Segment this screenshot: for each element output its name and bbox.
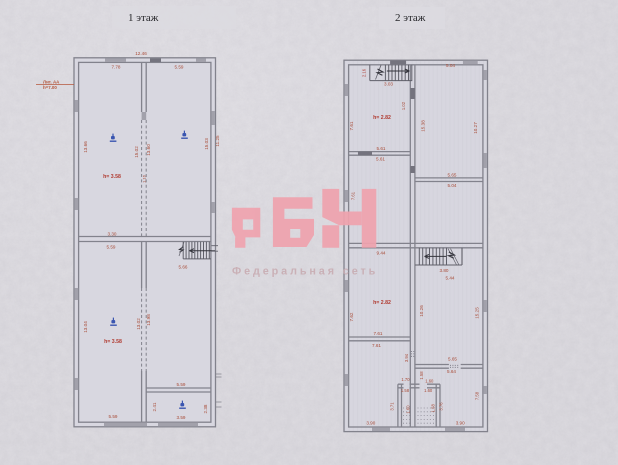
svg-text:1.70: 1.70 [401, 377, 410, 382]
svg-text:5.61: 5.61 [376, 157, 385, 162]
svg-text:3.71: 3.71 [390, 402, 395, 411]
svg-text:13.60: 13.60 [146, 144, 151, 156]
svg-text:15.38: 15.38 [421, 120, 426, 132]
svg-text:5.61: 5.61 [377, 146, 386, 151]
svg-text:2.16: 2.16 [362, 68, 367, 77]
svg-text:5.65: 5.65 [448, 173, 457, 178]
svg-text:1.60: 1.60 [406, 405, 411, 414]
svg-text:5.66: 5.66 [179, 265, 188, 270]
svg-text:11.25: 11.25 [215, 135, 220, 147]
svg-text:2.38: 2.38 [203, 404, 208, 413]
svg-text:3.94: 3.94 [404, 353, 409, 362]
svg-text:3.76: 3.76 [439, 402, 444, 411]
svg-text:5.59: 5.59 [109, 414, 118, 419]
svg-text:10.26: 10.26 [419, 305, 424, 317]
svg-text:2 этаж: 2 этаж [395, 12, 426, 24]
svg-text:3.90: 3.90 [456, 420, 465, 425]
svg-text:5.59: 5.59 [175, 65, 184, 70]
svg-text:3.59: 3.59 [177, 415, 186, 420]
svg-text:12.46: 12.46 [135, 51, 147, 56]
svg-text:13.04: 13.04 [83, 321, 88, 333]
svg-text:5.04: 5.04 [448, 183, 457, 188]
svg-text:Лит. АА: Лит. АА [43, 80, 60, 85]
svg-text:5.64: 5.64 [447, 369, 456, 374]
svg-text:3.90: 3.90 [366, 420, 375, 425]
svg-text:13.02: 13.02 [136, 318, 141, 330]
svg-text:5.65: 5.65 [448, 357, 457, 362]
svg-text:7.58: 7.58 [475, 391, 480, 400]
svg-text:Федеральная сеть: Федеральная сеть [232, 266, 378, 278]
svg-text:7.62: 7.62 [349, 312, 354, 321]
svg-text:1 этаж: 1 этаж [128, 12, 159, 24]
svg-text:1.58: 1.58 [401, 388, 410, 393]
svg-text:7.61: 7.61 [374, 331, 383, 336]
svg-text:5.59: 5.59 [177, 382, 186, 387]
svg-text:1.58: 1.58 [431, 404, 436, 413]
svg-text:9.44: 9.44 [377, 251, 386, 256]
svg-text:5.44: 5.44 [446, 276, 455, 281]
svg-text:15.25: 15.25 [475, 307, 480, 319]
svg-text:7.78: 7.78 [112, 65, 121, 70]
svg-text:10.27: 10.27 [473, 122, 478, 134]
svg-text:2.41: 2.41 [152, 402, 157, 411]
svg-text:h= 2.82: h= 2.82 [373, 300, 391, 306]
svg-text:13.66: 13.66 [83, 141, 88, 153]
svg-text:15.02: 15.02 [134, 146, 139, 158]
svg-text:1.16: 1.16 [142, 174, 147, 183]
svg-text:7.61: 7.61 [372, 343, 381, 348]
svg-text:1.02: 1.02 [401, 101, 406, 110]
svg-text:1.58: 1.58 [419, 371, 424, 380]
svg-text:h=7.00: h=7.00 [43, 85, 57, 90]
svg-text:h= 2.82: h= 2.82 [373, 115, 391, 121]
svg-text:1.60: 1.60 [424, 388, 433, 393]
svg-text:7.61: 7.61 [351, 191, 356, 200]
svg-text:h= 3.58: h= 3.58 [104, 339, 122, 345]
svg-text:3.80: 3.80 [440, 268, 449, 273]
svg-text:5.04: 5.04 [446, 63, 455, 68]
svg-text:5.59: 5.59 [107, 245, 116, 250]
svg-text:1.60: 1.60 [425, 378, 434, 383]
svg-text:13.98: 13.98 [146, 314, 151, 326]
svg-text:7.61: 7.61 [349, 121, 354, 130]
svg-text:h= 3.58: h= 3.58 [103, 174, 121, 180]
svg-text:15.03: 15.03 [204, 138, 209, 150]
svg-text:3.30: 3.30 [108, 232, 117, 237]
svg-text:3.03: 3.03 [384, 82, 393, 87]
